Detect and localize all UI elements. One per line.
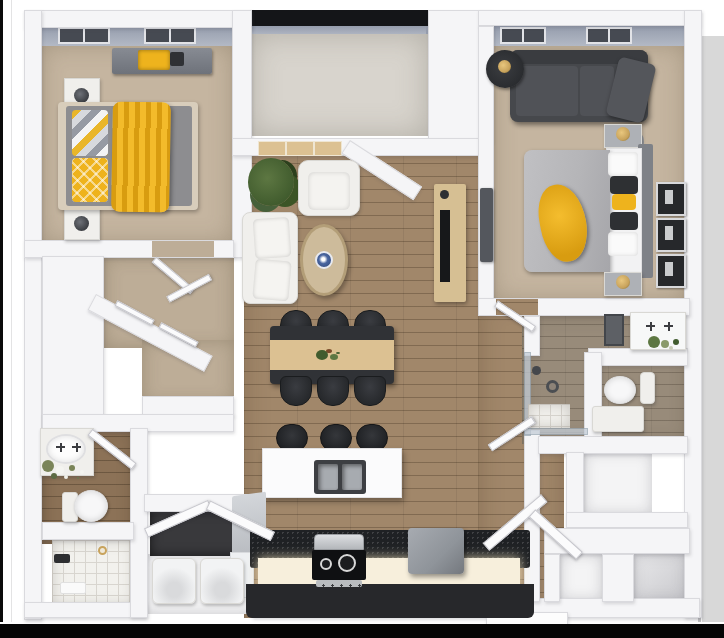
island-sink-left — [318, 464, 338, 490]
bedroom1-dresser-decor-yellow — [138, 50, 170, 70]
coat-closet-left-floor — [560, 554, 602, 600]
bedroom1-throw-yellow — [111, 102, 171, 213]
living-console-decor — [440, 190, 449, 199]
page-edge-left-black — [0, 0, 3, 622]
bathroom1-faucet-hot — [56, 443, 65, 452]
page-frame-line-left — [11, 0, 12, 622]
bathroom2-faucet-cold — [664, 322, 673, 331]
cooktop-controls — [316, 580, 362, 587]
bedroom2-wall-frame-3 — [656, 254, 686, 288]
bedroom1-pillow-yellow — [72, 158, 108, 202]
bedroom1-dresser-decor-dark — [170, 52, 184, 66]
shower-glass-front — [524, 428, 588, 435]
bedroom2-window-right — [586, 27, 632, 44]
bedroom1-lamp-bottom — [74, 216, 89, 231]
wall-coat-closets-left — [544, 554, 560, 602]
dining-chair-4 — [280, 376, 312, 406]
living-plant — [248, 158, 294, 206]
tub-tile-floor — [52, 540, 134, 606]
bedroom1-pillow-patterned — [72, 110, 108, 156]
coat-closet-right-floor — [634, 554, 686, 600]
tub-towel — [60, 582, 86, 594]
washer — [152, 558, 196, 604]
dining-centerpiece — [316, 350, 328, 360]
bathroom1-flowers — [42, 460, 54, 472]
bedroom2-pillow-yellow — [612, 194, 636, 210]
refrigerator — [408, 528, 464, 574]
dining-chair-5 — [317, 376, 349, 406]
closet-shelf-band — [142, 396, 234, 416]
page-bar-bottom-black — [0, 624, 724, 638]
burner-small — [320, 558, 332, 570]
living-sofa-cushion-2 — [252, 259, 291, 302]
living-armchair-cushion — [308, 172, 350, 210]
bedroom2-pillow-white-bottom — [608, 232, 638, 256]
wall-bathroom2-h1 — [588, 348, 688, 366]
balcony-floor — [250, 34, 428, 136]
bedroom1-lamp-top — [74, 88, 89, 103]
tub-faucet — [54, 554, 70, 563]
wall-coat-closets-mid — [602, 554, 634, 602]
bedroom2-wall-frame-2 — [656, 218, 686, 252]
living-sofa-cushion-1 — [253, 217, 292, 259]
bedroom1-door-opening — [152, 241, 214, 257]
dining-chair-6 — [354, 376, 386, 406]
bathroom1-faucet-cold — [72, 443, 81, 452]
bedroom2-pillow-dark-bottom — [610, 212, 638, 230]
bedroom2-pillow-dark-top — [610, 176, 638, 194]
outer-wall-top-right — [478, 10, 700, 26]
tub-drain — [98, 546, 107, 555]
island-sink-right — [342, 464, 362, 490]
balcony-railing — [248, 10, 430, 26]
bedroom2-lamp-top — [616, 127, 630, 141]
bathroom2-plant — [648, 336, 660, 348]
bedroom2-lamp-bottom — [616, 275, 630, 289]
bedroom2-dresser-dark — [480, 188, 493, 262]
shower-tile-strip — [528, 404, 570, 428]
bathroom2-bench — [592, 406, 644, 432]
toilet1-bowl — [74, 490, 108, 522]
living-tv-console — [434, 184, 466, 302]
living-window-sill-3 — [314, 141, 342, 156]
wall-bathroom1-mid — [42, 522, 134, 540]
bedroom2-sofa-cushion-1 — [516, 66, 578, 116]
dining-table-runner — [270, 340, 394, 370]
toilet2-bowl — [604, 376, 636, 404]
floor-plan-render — [0, 0, 724, 638]
page-shadow-right — [702, 36, 724, 622]
outer-wall-left — [24, 10, 42, 620]
outer-wall-top-left — [24, 10, 252, 28]
bedroom2-table-decor — [498, 60, 511, 73]
bathroom2-mirror-dark — [604, 314, 624, 346]
bedroom1-window-left — [58, 27, 110, 44]
range-hood — [314, 534, 364, 550]
burner-large — [338, 554, 356, 572]
kitchen-base-cabinets — [246, 584, 534, 618]
bedroom2-window-left — [500, 27, 546, 44]
living-window-sill-2 — [286, 141, 314, 156]
bedroom2-pillow-white-top — [608, 152, 638, 176]
living-blue-bowl — [315, 251, 333, 269]
dryer — [200, 558, 244, 604]
bedroom2-wall-frame-1 — [656, 182, 686, 216]
living-tv — [440, 210, 450, 282]
bathroom2-faucet-hot — [646, 322, 655, 331]
wall-bathroom2-h2 — [538, 436, 688, 454]
outer-wall-bottom-left — [24, 602, 146, 618]
linen-closet-floor — [584, 452, 652, 514]
wall-closet-west-mass — [42, 256, 104, 428]
bedroom1-window-right — [144, 27, 196, 44]
wall-linen-closet-bottom — [566, 512, 688, 528]
toilet2-tank — [640, 372, 655, 404]
shower-head — [532, 366, 541, 375]
shower-drain — [546, 380, 559, 393]
living-window-sill-1 — [258, 141, 286, 156]
